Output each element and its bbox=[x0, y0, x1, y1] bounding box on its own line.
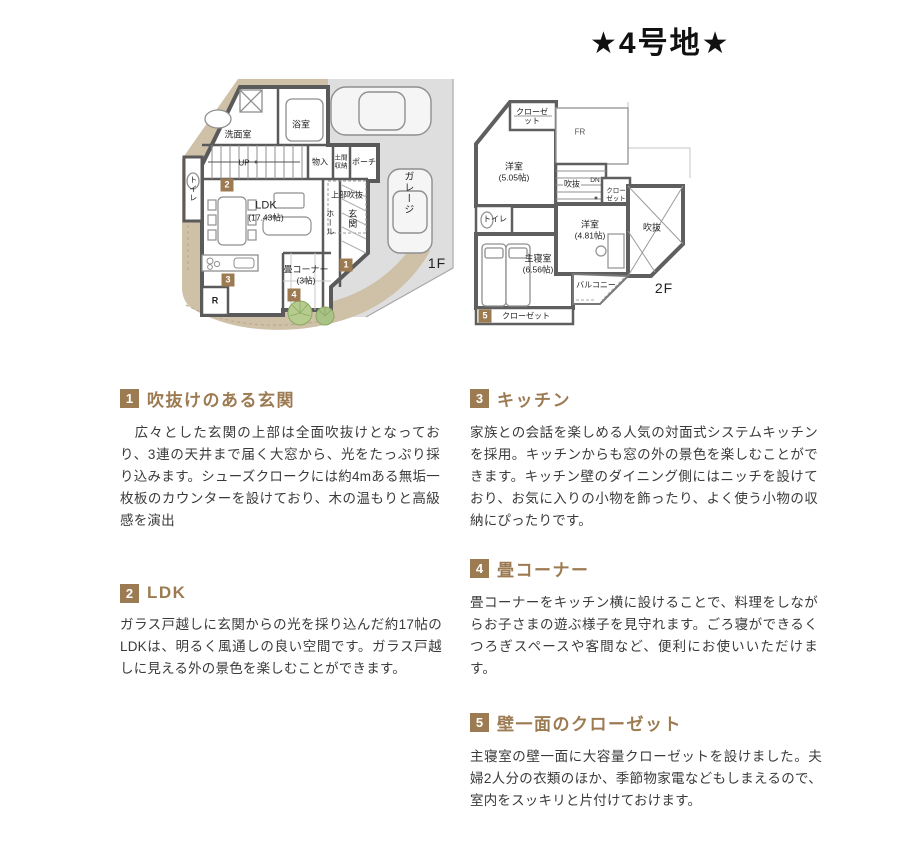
feature-title: 壁一面のクローゼット bbox=[497, 710, 682, 735]
feature-number-badge: 3 bbox=[470, 389, 489, 408]
feature-body: ガラス戸越しに玄関からの光を採り込んだ約17帖のLDKは、明るく風通しの良い空間… bbox=[120, 614, 442, 680]
feature-section-entrance: 1 吹抜けのある玄関 広々とした玄関の上部は全面吹抜けとなっており、3連の天井ま… bbox=[120, 386, 440, 532]
floor-label-2f: 2F bbox=[655, 280, 673, 296]
page-title: ★4号地★ bbox=[590, 18, 730, 62]
feature-number-badge: 4 bbox=[470, 559, 489, 578]
floor-plan-1f-drawing bbox=[178, 73, 463, 343]
feature-section-tatami: 4 畳コーナー 畳コーナーをキッチン横に設けることで、料理をしながらお子さまの遊… bbox=[470, 556, 818, 680]
feature-number-badge: 2 bbox=[120, 584, 139, 603]
bed-icon bbox=[482, 244, 530, 306]
flyer-page: ★4号地★ bbox=[0, 0, 900, 850]
feature-body: 広々とした玄関の上部は全面吹抜けとなっており、3連の天井まで届く大窓から、光をた… bbox=[120, 422, 440, 532]
feature-body: 家族との会話を楽しめる人気の対面式システムキッチンを採用。キッチンからも窓の外の… bbox=[470, 422, 818, 532]
feature-body: 畳コーナーをキッチン横に設けることで、料理をしながらお子さまの遊ぶ様子を見守れま… bbox=[470, 592, 818, 680]
kitchen-counter bbox=[202, 255, 258, 271]
feature-number-badge: 1 bbox=[120, 389, 139, 408]
plan-marker-1: 1 bbox=[340, 259, 353, 272]
feature-title: 吹抜けのある玄関 bbox=[147, 386, 295, 411]
feature-section-closet: 5 壁一面のクローゼット 主寝室の壁一面に大容量クローゼットを設けました。夫婦2… bbox=[470, 710, 822, 812]
plan-marker-3: 3 bbox=[222, 274, 235, 287]
floor-plan-2f: クローゼット FR 洋室 (5.05帖) 吹抜 DN クローゼット トイレ 洋室… bbox=[468, 86, 698, 331]
feature-number-badge: 5 bbox=[470, 713, 489, 732]
feature-title: 畳コーナー bbox=[497, 556, 590, 581]
plan-marker-4: 4 bbox=[288, 289, 301, 302]
feature-section-kitchen: 3 キッチン 家族との会話を楽しめる人気の対面式システムキッチンを採用。キッチン… bbox=[470, 386, 818, 532]
floor-label-1f: 1F bbox=[428, 255, 446, 271]
plan-marker-2: 2 bbox=[221, 179, 234, 192]
plan-marker-5: 5 bbox=[479, 310, 492, 323]
car-icon bbox=[331, 87, 431, 135]
feature-title: LDK bbox=[147, 583, 186, 603]
feature-section-ldk: 2 LDK ガラス戸越しに玄関からの光を採り込んだ約17帖のLDKは、明るく風通… bbox=[120, 583, 442, 680]
feature-body: 主寝室の壁一面に大容量クローゼットを設けました。夫婦2人分の衣類のほか、季節物家… bbox=[470, 746, 822, 812]
dining-table bbox=[208, 197, 256, 245]
car-icon bbox=[388, 169, 432, 253]
feature-title: キッチン bbox=[497, 386, 571, 411]
floor-plan-1f: 洗面室 浴室 トイレ UP 物入 土間収納 ポーチ 上部吹抜 ホール 玄関 LD… bbox=[178, 73, 463, 343]
